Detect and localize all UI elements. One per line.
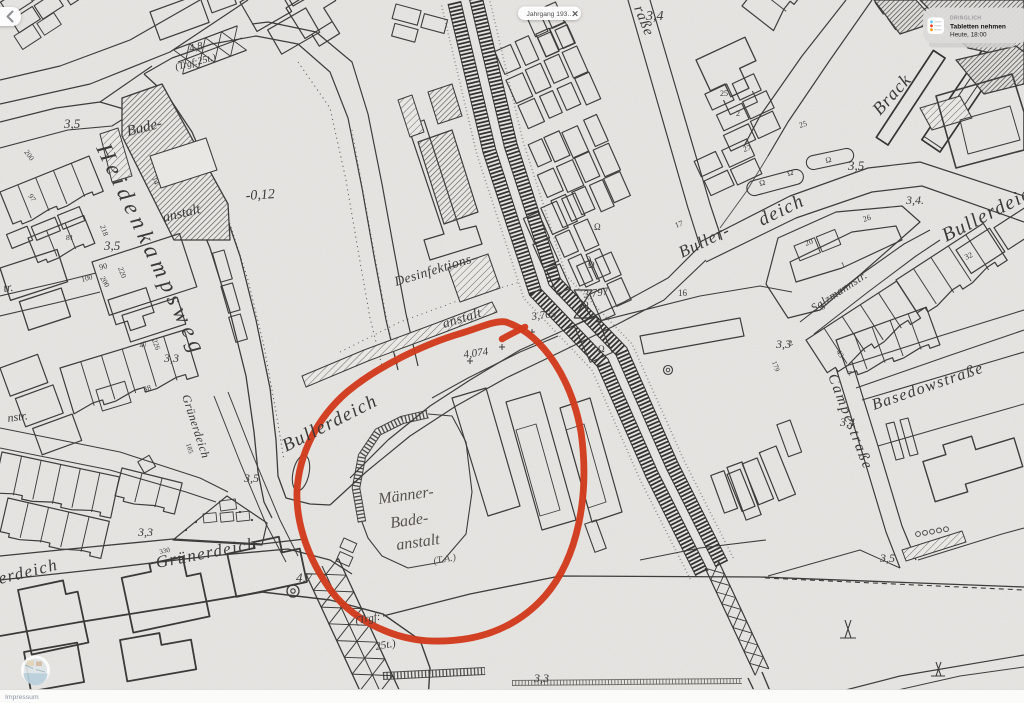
svg-text:3,3: 3,3 [137, 525, 153, 539]
svg-text:3,4.: 3,4. [905, 193, 924, 207]
svg-text:25: 25 [720, 89, 728, 98]
svg-text:3,5: 3,5 [879, 551, 895, 565]
svg-text:3,4: 3,4 [645, 9, 664, 24]
svg-text:Tabletten nehmen: Tabletten nehmen [950, 24, 1006, 31]
svg-text:Heute, 18:00: Heute, 18:00 [950, 32, 987, 39]
svg-text:tr.: tr. [2, 280, 14, 295]
svg-text:2: 2 [736, 109, 740, 118]
svg-text:Ω: Ω [594, 222, 601, 232]
svg-text:7: 7 [848, 369, 852, 378]
svg-text:3,5: 3,5 [63, 116, 81, 131]
svg-text:3,5: 3,5 [243, 471, 259, 485]
svg-text:3,4: 3,4 [839, 415, 855, 429]
svg-text:Ω: Ω [598, 344, 605, 354]
svg-text:3,5: 3,5 [103, 238, 121, 253]
svg-text:nstr.: nstr. [6, 408, 28, 425]
svg-text:-0,12: -0,12 [245, 187, 275, 204]
svg-text:DRINGLICH: DRINGLICH [950, 16, 981, 22]
svg-text:81: 81 [66, 233, 74, 242]
svg-text:Jahrgang 193…: Jahrgang 193… [527, 11, 575, 18]
svg-text:4,7: 4,7 [296, 570, 313, 585]
svg-text:Impressum: Impressum [5, 694, 39, 701]
svg-text:3,5: 3,5 [847, 158, 865, 173]
svg-text:16: 16 [678, 288, 688, 298]
svg-text:3,3: 3,3 [775, 337, 791, 351]
svg-text:3,3: 3,3 [163, 351, 179, 365]
svg-text:Ω: Ω [582, 300, 589, 310]
svg-text:3,3: 3,3 [533, 671, 549, 685]
